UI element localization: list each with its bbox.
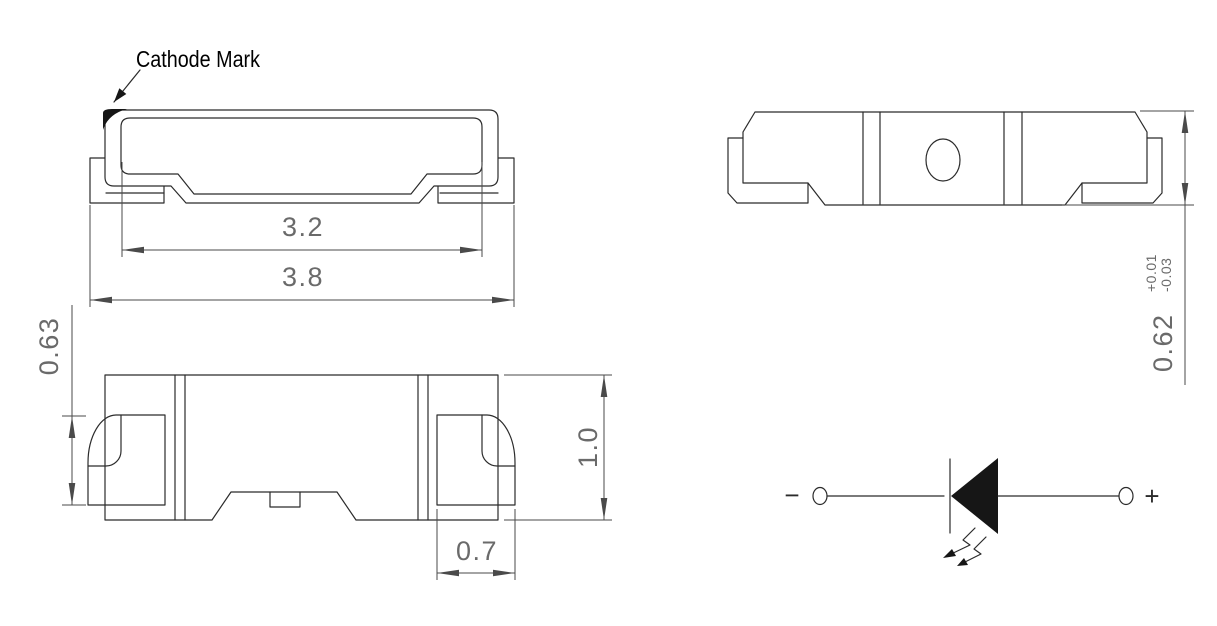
led-schematic-symbol: − + bbox=[784, 458, 1159, 566]
dimension-value: 0.62 bbox=[1148, 313, 1178, 372]
light-emission-arrows bbox=[943, 528, 986, 566]
top-view: Cathode Mark 3.2 3.8 bbox=[90, 46, 514, 307]
negative-terminal-label: − bbox=[784, 480, 799, 510]
cathode-mark-label: Cathode Mark bbox=[136, 46, 260, 72]
negative-terminal-node bbox=[813, 488, 827, 505]
end-view-left-terminal bbox=[728, 138, 808, 203]
end-view-lens-circle bbox=[926, 139, 960, 181]
side-view-left-terminal bbox=[88, 415, 165, 505]
smd-led-drawing: Cathode Mark 3.2 3.8 bbox=[0, 0, 1217, 626]
dimension-value: 3.8 bbox=[282, 262, 324, 292]
emission-arrow-head bbox=[943, 549, 956, 558]
dimension-package-height: 1.0 bbox=[504, 375, 612, 520]
dimension-tolerance-upper: +0.01 bbox=[1143, 254, 1159, 292]
end-view: 0.62 +0.01 -0.03 bbox=[728, 111, 1194, 385]
dimension-value: 0.63 bbox=[34, 317, 64, 376]
positive-terminal-label: + bbox=[1144, 481, 1159, 511]
cathode-mark-leader-arrow bbox=[114, 70, 140, 102]
diode-triangle bbox=[951, 458, 998, 534]
end-view-right-terminal bbox=[1082, 138, 1162, 203]
positive-terminal-node bbox=[1119, 488, 1133, 505]
dimension-terminal-height: 0.63 bbox=[34, 305, 86, 505]
dimension-value: 3.2 bbox=[282, 212, 324, 242]
end-view-body-outline bbox=[743, 112, 1147, 205]
side-view: 0.63 1.0 0.7 bbox=[34, 305, 612, 580]
side-view-body-outline bbox=[105, 375, 498, 520]
side-view-right-terminal bbox=[437, 415, 515, 505]
side-view-center-boss bbox=[270, 492, 300, 507]
dimension-value: 0.7 bbox=[456, 536, 498, 566]
dimension-value: 1.0 bbox=[573, 426, 603, 468]
dimension-tolerance-lower: -0.03 bbox=[1158, 258, 1174, 292]
emission-arrow-head bbox=[957, 558, 968, 566]
dimension-thickness: 0.62 +0.01 -0.03 bbox=[1062, 111, 1194, 385]
technical-drawing-page: Cathode Mark 3.2 3.8 bbox=[0, 0, 1217, 626]
